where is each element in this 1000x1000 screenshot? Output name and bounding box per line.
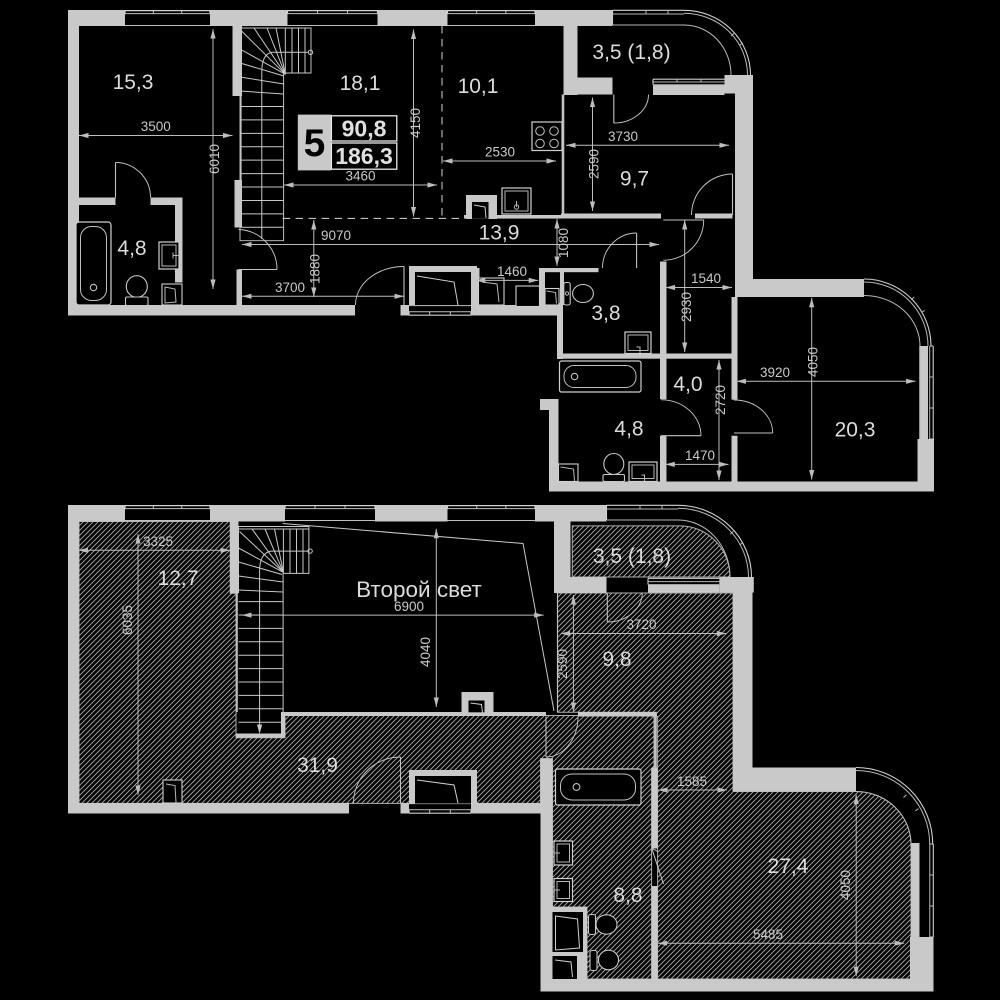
svg-text:1540: 1540 <box>691 271 721 286</box>
svg-text:186,3: 186,3 <box>335 143 393 169</box>
svg-text:3460: 3460 <box>345 169 375 184</box>
svg-text:31,9: 31,9 <box>297 754 338 777</box>
svg-text:8,8: 8,8 <box>613 884 642 907</box>
svg-text:3730: 3730 <box>608 129 638 144</box>
svg-text:3720: 3720 <box>626 617 656 632</box>
svg-text:3325: 3325 <box>143 534 173 549</box>
svg-text:4050: 4050 <box>838 870 853 900</box>
svg-text:3,5 (1,8): 3,5 (1,8) <box>592 41 670 64</box>
svg-text:9070: 9070 <box>321 228 351 243</box>
svg-text:3700: 3700 <box>275 280 305 295</box>
svg-text:4,8: 4,8 <box>614 418 643 441</box>
svg-text:10,1: 10,1 <box>458 75 499 98</box>
svg-text:6010: 6010 <box>207 144 222 174</box>
svg-text:2590: 2590 <box>587 149 602 179</box>
svg-text:2590: 2590 <box>555 649 570 679</box>
svg-text:4150: 4150 <box>408 108 423 138</box>
svg-text:5485: 5485 <box>753 927 783 942</box>
svg-text:1880: 1880 <box>308 254 323 284</box>
svg-text:90,8: 90,8 <box>342 116 387 142</box>
svg-text:4050: 4050 <box>806 347 821 377</box>
svg-text:3,8: 3,8 <box>591 302 620 325</box>
svg-text:13,9: 13,9 <box>479 222 520 245</box>
svg-text:4040: 4040 <box>418 637 433 667</box>
svg-text:3920: 3920 <box>760 365 790 380</box>
svg-text:5: 5 <box>304 122 326 165</box>
svg-text:2930: 2930 <box>679 292 694 322</box>
svg-text:Второй свет: Второй свет <box>356 577 482 602</box>
svg-text:9,7: 9,7 <box>620 168 649 191</box>
svg-text:1460: 1460 <box>497 264 527 279</box>
svg-text:18,1: 18,1 <box>340 72 381 95</box>
svg-text:2720: 2720 <box>713 385 728 415</box>
svg-text:3500: 3500 <box>141 119 171 134</box>
svg-text:4,0: 4,0 <box>673 373 702 396</box>
svg-text:27,4: 27,4 <box>768 855 809 878</box>
svg-text:20,3: 20,3 <box>835 419 876 442</box>
svg-text:9,8: 9,8 <box>602 648 631 671</box>
svg-text:4,8: 4,8 <box>117 237 146 260</box>
svg-text:1470: 1470 <box>685 448 715 463</box>
svg-text:15,3: 15,3 <box>113 71 154 94</box>
svg-text:1080: 1080 <box>556 228 571 258</box>
svg-text:12,7: 12,7 <box>158 567 199 590</box>
svg-text:3,5 (1,8): 3,5 (1,8) <box>593 545 671 568</box>
svg-text:2530: 2530 <box>485 145 515 160</box>
svg-text:6035: 6035 <box>120 605 135 635</box>
svg-text:1585: 1585 <box>677 774 707 789</box>
